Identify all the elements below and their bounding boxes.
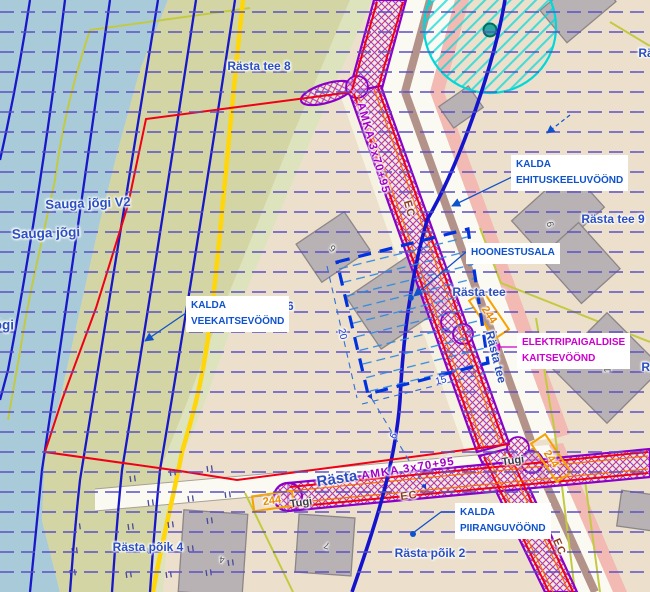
well-marker [484, 24, 497, 37]
map-graphics [0, 0, 650, 592]
planning-map[interactable]: Rästa tee 8Sauga jõgi V2Sauga jõgijõgiRä… [0, 0, 650, 592]
